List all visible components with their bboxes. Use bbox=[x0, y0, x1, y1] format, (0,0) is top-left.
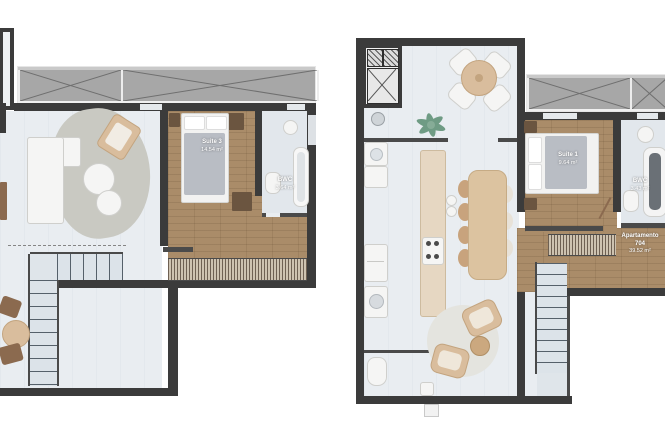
shaft-enclosure bbox=[362, 44, 402, 108]
room-label-bwc2: BWC 3.43 m² bbox=[618, 178, 662, 192]
stair-landing bbox=[537, 373, 567, 396]
brise-segment bbox=[630, 78, 665, 109]
shower-partition bbox=[364, 350, 432, 353]
sink-small bbox=[371, 112, 385, 126]
toilet bbox=[367, 357, 387, 386]
chair-cushion bbox=[467, 305, 495, 330]
wall-bottom bbox=[356, 396, 572, 404]
floorplan-canvas: Suite 3 14.54 m² BWC 3.64 m² bbox=[0, 0, 665, 431]
window-opening bbox=[543, 113, 577, 119]
wardrobe-hatch bbox=[548, 234, 616, 256]
lavatory bbox=[420, 382, 434, 396]
x-brace-icon bbox=[632, 78, 665, 109]
wall-right-upper bbox=[517, 38, 525, 114]
oven-stack bbox=[364, 244, 388, 282]
kitchen-sink bbox=[364, 142, 388, 166]
stairs-flight bbox=[537, 263, 567, 373]
entry-threshold bbox=[424, 404, 439, 417]
x-brace-icon bbox=[368, 69, 396, 101]
x-brace-icon bbox=[529, 78, 630, 109]
wall-right-lower bbox=[517, 292, 525, 396]
wall-suite1-bwc bbox=[613, 112, 621, 212]
dining-table bbox=[468, 170, 507, 280]
plant-icon bbox=[413, 110, 449, 140]
burner bbox=[434, 241, 439, 246]
side-table bbox=[470, 336, 490, 356]
room-label-suite1: Suite 1 9.64 m² bbox=[540, 152, 596, 166]
nightstand bbox=[524, 121, 537, 133]
shaft-box bbox=[367, 49, 383, 67]
chair-cushion bbox=[436, 349, 463, 371]
burner bbox=[434, 254, 439, 259]
window-opening bbox=[637, 113, 658, 119]
burner bbox=[426, 241, 431, 246]
island-sink bbox=[446, 195, 457, 206]
wall-bwc2-bottom bbox=[621, 223, 665, 228]
balcony-brise bbox=[527, 75, 665, 111]
brise-segment bbox=[527, 78, 632, 109]
wall-wing-bottom bbox=[567, 288, 665, 296]
round-table bbox=[461, 60, 497, 96]
shaft-box bbox=[383, 49, 399, 67]
wall-terrace-stub bbox=[498, 138, 517, 142]
fridge bbox=[364, 166, 388, 188]
stair-edge bbox=[567, 296, 570, 396]
washer bbox=[364, 286, 388, 318]
elevator-box bbox=[367, 68, 399, 104]
table-center bbox=[475, 74, 483, 82]
oven-divider bbox=[367, 261, 384, 262]
burner bbox=[426, 254, 431, 259]
cooktop bbox=[422, 237, 444, 265]
island-sink bbox=[446, 206, 457, 217]
nightstand bbox=[524, 198, 537, 210]
floorplan-right: Suite 1 9.64 m² BWC 3.43 m² Apartamento … bbox=[0, 0, 665, 431]
pillow bbox=[528, 164, 542, 190]
sink bbox=[637, 126, 654, 143]
sink-basin bbox=[370, 148, 383, 161]
apartment-label: Apartamento 704 39.52 m² bbox=[613, 233, 665, 255]
toilet bbox=[623, 190, 639, 212]
kitchen-island bbox=[420, 150, 446, 317]
washer-drum bbox=[369, 294, 384, 309]
wall-suite1-bottom bbox=[525, 226, 603, 231]
